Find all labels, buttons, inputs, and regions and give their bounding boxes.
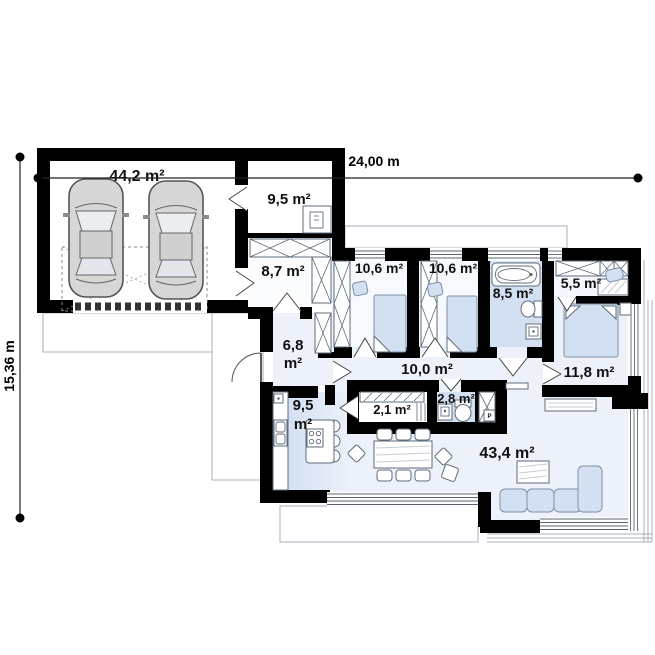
- sideboard: [545, 399, 596, 411]
- sink-icon-bathroom: [526, 324, 541, 339]
- wardrobe-87-side: [312, 257, 331, 303]
- eaves-outline: [345, 226, 567, 248]
- window-dressing: [548, 248, 562, 261]
- kitchen-area-value: 9,5: [293, 397, 314, 414]
- coffee-table: [517, 461, 549, 483]
- walkway-outline: [212, 313, 263, 480]
- hall-closet: [315, 313, 331, 353]
- wardrobe-bedroom1: [334, 261, 350, 347]
- living-area-label: 43,4 m²: [479, 445, 534, 462]
- toilet-icon-bathroom: [521, 301, 542, 317]
- bedroom1-area-label: 10,6 m²: [355, 260, 404, 276]
- boiler-icon: [303, 206, 331, 233]
- sliding-door-south-left: [327, 492, 478, 506]
- car-2: [143, 181, 209, 299]
- floor-plan: P: [0, 0, 655, 655]
- doormat: [506, 383, 528, 389]
- sliding-door-south-right: [540, 517, 628, 531]
- glazing-east: [628, 409, 641, 531]
- chair-bedroom1: [352, 281, 368, 297]
- window-bathroom: [488, 248, 540, 261]
- hall-area-unit: m²: [284, 355, 302, 372]
- wardrobe-area-label: 8,7 m²: [261, 263, 304, 280]
- washer-label: P: [487, 414, 491, 420]
- height-dimension-label: 15,36 m: [1, 340, 17, 391]
- terrace-gap: [327, 505, 478, 526]
- garage: [62, 179, 209, 313]
- dimension-left: 15,36 m: [1, 153, 25, 523]
- wardrobe-87-top: [250, 239, 330, 257]
- nightstand: [620, 303, 631, 315]
- driveway-outline: [43, 313, 212, 352]
- corridor-area-label: 10,0 m²: [401, 361, 453, 378]
- bathroom-area-label: 8,5 m²: [493, 285, 534, 301]
- wc-area-label: 2,8 m²: [437, 391, 475, 406]
- bedroom2-area-label: 10,6 m²: [429, 260, 478, 276]
- pantry-area-label: 2,1 m²: [373, 402, 411, 417]
- utility-area-label: 9,5 m²: [267, 191, 310, 208]
- bathtub-icon: [492, 263, 540, 286]
- chair-bedroom2: [427, 282, 443, 298]
- washing-machine: P: [479, 392, 495, 422]
- dressing-area-label: 5,5 m²: [561, 275, 602, 291]
- kitchen-area-unit: m²: [294, 416, 312, 433]
- width-dimension-label: 24,00 m: [348, 153, 399, 169]
- bedroom3-area-label: 11,8 m²: [564, 364, 615, 381]
- front-door: [232, 353, 261, 382]
- utility-room: [303, 206, 331, 233]
- garage-area-label: 44,2 m²: [109, 168, 164, 185]
- kitchen-counter: [273, 392, 288, 490]
- car-1: [63, 179, 129, 297]
- hall-area-value: 6,8: [283, 337, 304, 354]
- sink-icon-wc: [438, 404, 452, 420]
- kitchen-sink-icon: [274, 420, 287, 446]
- door-garage-utility: [229, 187, 247, 211]
- dining-table: [374, 441, 432, 468]
